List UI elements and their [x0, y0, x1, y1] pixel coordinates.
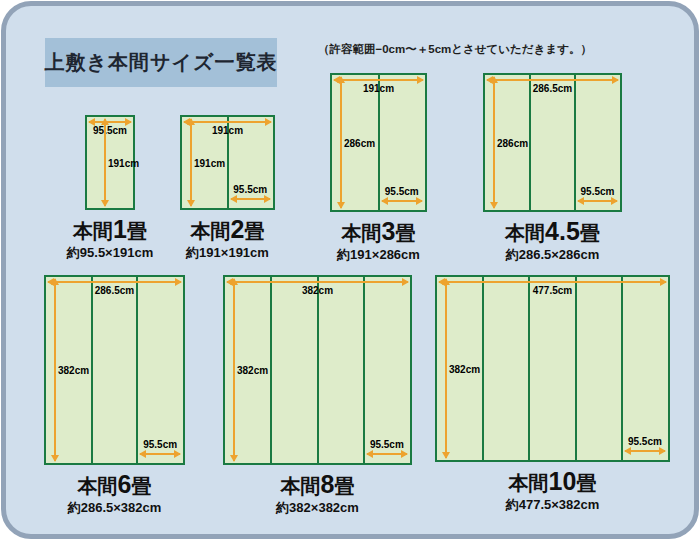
diagram-honma-1jo: 95.5cm 191cm 本間1畳 約95.5×191cm — [85, 115, 135, 210]
width-arrow — [227, 281, 408, 283]
diagram-caption: 本間10畳 約477.5×382cm — [506, 462, 600, 514]
width-arrow — [48, 281, 181, 283]
height-label: 286cm — [497, 137, 528, 148]
diagram-subtitle: 約286.5×286cm — [505, 246, 600, 264]
width-label: 286.5cm — [46, 285, 183, 296]
diagram-caption: 本間4.5畳 約286.5×286cm — [505, 212, 600, 264]
diagram-subtitle: 約477.5×382cm — [506, 496, 600, 514]
width-arrow — [487, 79, 618, 81]
mat-outline: 286.5cm 286cm 95.5cm — [483, 73, 622, 212]
diagram-title: 本間8畳 — [276, 472, 359, 498]
title-banner: 上敷き本間サイズ一覧表 — [45, 38, 277, 87]
diagram-honma-3jo: 191cm 286cm 95.5cm 本間3畳 約191×286cm — [330, 73, 427, 212]
mat-divider — [482, 277, 484, 460]
diagram-honma-2jo: 191cm 191cm 95.5cm 本間2畳 約191×191cm — [180, 115, 275, 210]
width-arrow — [184, 121, 271, 123]
width-arrow — [89, 121, 131, 123]
mat-outline: 286.5cm 382cm 95.5cm — [44, 275, 185, 465]
diagram-title: 本間1畳 — [67, 217, 153, 243]
width-label: 95.5cm — [87, 125, 133, 136]
mat-outline: 477.5cm 382cm 95.5cm — [435, 275, 670, 462]
diagram-honma-8jo: 382cm 382cm 95.5cm 本間8畳 約382×382cm — [223, 275, 412, 465]
mat-width-arrow — [367, 453, 407, 455]
diagram-honma-6jo: 286.5cm 382cm 95.5cm 本間6畳 約286.5×382cm — [44, 275, 185, 465]
mat-divider — [136, 277, 138, 463]
page-title: 上敷き本間サイズ一覧表 — [45, 49, 278, 76]
diagram-caption: 本間6畳 約286.5×382cm — [68, 465, 162, 517]
mat-divider — [575, 277, 577, 460]
height-label: 191cm — [108, 157, 139, 168]
width-label: 191cm — [332, 83, 425, 94]
mat-width-label: 95.5cm — [379, 186, 426, 197]
width-label: 191cm — [182, 125, 273, 136]
diagram-title: 本間10畳 — [506, 469, 600, 495]
mat-width-label: 95.5cm — [575, 186, 620, 197]
width-label: 286.5cm — [485, 83, 620, 94]
diagram-caption: 本間8畳 約382×382cm — [276, 465, 359, 517]
mat-divider — [363, 277, 365, 463]
diagram-honma-10jo: 477.5cm 382cm 95.5cm 本間10畳 約477.5×382cm — [435, 275, 670, 462]
height-arrow — [340, 77, 342, 208]
height-label: 382cm — [58, 365, 89, 376]
mat-outline: 191cm 286cm 95.5cm — [330, 73, 427, 212]
width-arrow — [334, 79, 423, 81]
mat-width-arrow — [578, 200, 617, 202]
diagram-title: 本間6畳 — [68, 472, 162, 498]
width-label: 477.5cm — [437, 285, 668, 296]
mat-width-arrow — [231, 198, 271, 200]
mat-width-label: 95.5cm — [622, 436, 668, 447]
diagram-subtitle: 約191×286cm — [337, 246, 420, 264]
width-label: 382cm — [225, 285, 410, 296]
height-label: 286cm — [344, 137, 375, 148]
diagram-subtitle: 約382×382cm — [276, 499, 359, 517]
diagram-subtitle: 約191×191cm — [186, 244, 269, 262]
mat-width-label: 95.5cm — [137, 439, 183, 450]
mat-divider — [529, 75, 531, 210]
diagram-title: 本間2畳 — [186, 217, 269, 243]
diagram-caption: 本間3畳 約191×286cm — [337, 212, 420, 264]
mat-divider — [270, 277, 272, 463]
height-arrow — [445, 279, 447, 458]
mat-width-arrow — [382, 200, 423, 202]
diagram-title: 本間4.5畳 — [505, 219, 600, 245]
width-arrow — [439, 281, 666, 283]
mat-width-arrow — [140, 453, 180, 455]
diagram-subtitle: 約286.5×382cm — [68, 499, 162, 517]
height-arrow — [233, 279, 235, 461]
diagram-subtitle: 約95.5×191cm — [67, 244, 153, 262]
diagram-title: 本間3畳 — [337, 219, 420, 245]
mat-width-label: 95.5cm — [228, 184, 274, 195]
mat-divider — [317, 277, 319, 463]
mat-outline: 95.5cm 191cm — [85, 115, 135, 210]
height-label: 382cm — [449, 363, 480, 374]
tolerance-note: （許容範囲−0cm〜＋5cmとさせていただきます。） — [318, 42, 592, 57]
diagram-caption: 本間2畳 約191×191cm — [186, 210, 269, 262]
mat-outline: 191cm 191cm 95.5cm — [180, 115, 275, 210]
mat-width-arrow — [625, 450, 665, 452]
height-arrow — [104, 119, 106, 206]
mat-outline: 382cm 382cm 95.5cm — [223, 275, 412, 465]
mat-width-label: 95.5cm — [364, 439, 410, 450]
height-arrow — [493, 77, 495, 208]
height-arrow — [190, 119, 192, 206]
diagram-caption: 本間1畳 約95.5×191cm — [67, 210, 153, 262]
mat-divider — [528, 277, 530, 460]
diagram-honma-4-5jo: 286.5cm 286cm 95.5cm 本間4.5畳 約286.5×286cm — [483, 73, 622, 212]
height-arrow — [54, 279, 56, 461]
height-label: 382cm — [237, 365, 268, 376]
mat-divider — [91, 277, 93, 463]
mat-divider — [621, 277, 623, 460]
height-label: 191cm — [194, 157, 225, 168]
